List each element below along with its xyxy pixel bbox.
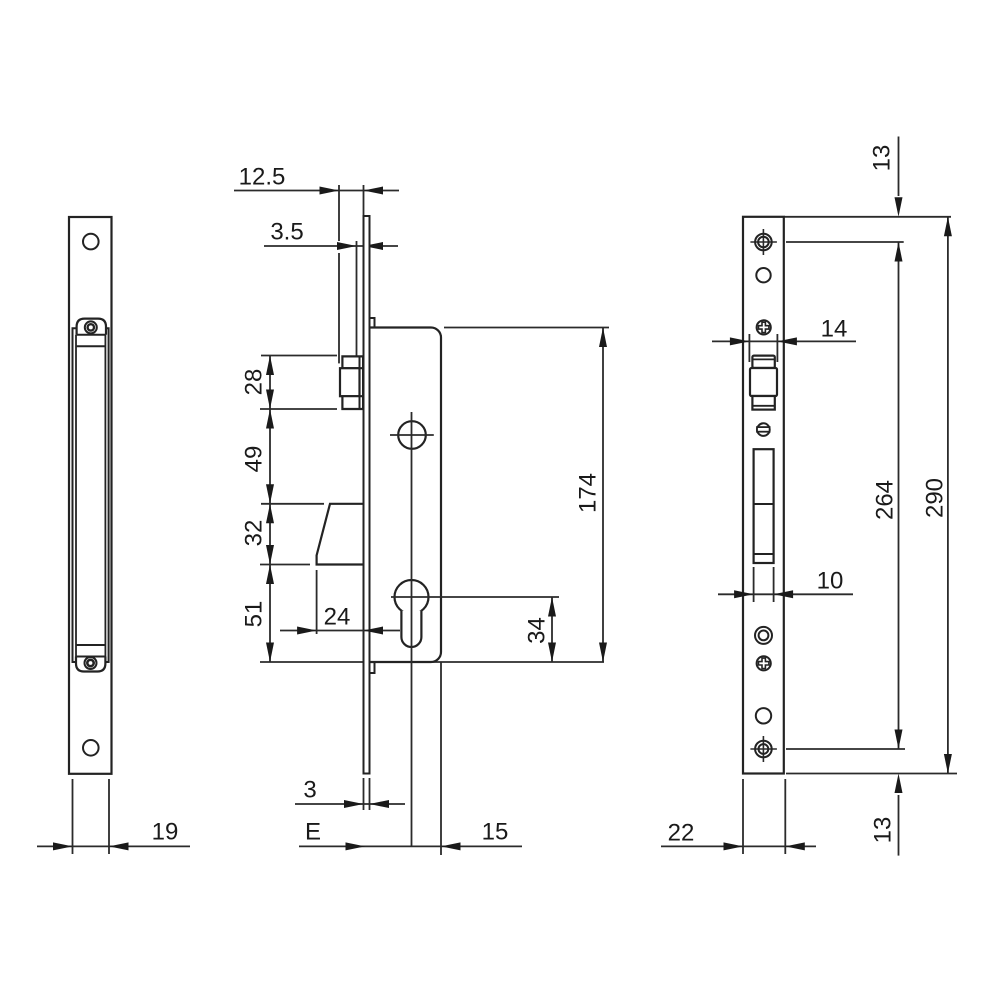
svg-text:24: 24: [324, 604, 351, 631]
svg-text:34: 34: [524, 617, 551, 644]
svg-text:13: 13: [869, 145, 896, 172]
svg-text:290: 290: [922, 478, 949, 518]
svg-text:14: 14: [821, 316, 848, 343]
svg-text:174: 174: [575, 473, 602, 513]
svg-text:13: 13: [870, 817, 897, 844]
svg-text:12.5: 12.5: [239, 164, 286, 191]
svg-text:15: 15: [482, 819, 509, 846]
svg-text:51: 51: [241, 601, 268, 628]
svg-text:E: E: [305, 819, 321, 846]
svg-text:32: 32: [241, 520, 268, 547]
svg-text:49: 49: [241, 446, 268, 473]
svg-text:22: 22: [668, 820, 695, 847]
svg-text:3: 3: [303, 777, 316, 804]
svg-text:10: 10: [817, 568, 844, 595]
svg-text:19: 19: [152, 819, 179, 846]
svg-text:3.5: 3.5: [270, 219, 303, 246]
svg-text:264: 264: [872, 480, 899, 520]
svg-text:28: 28: [241, 369, 268, 396]
